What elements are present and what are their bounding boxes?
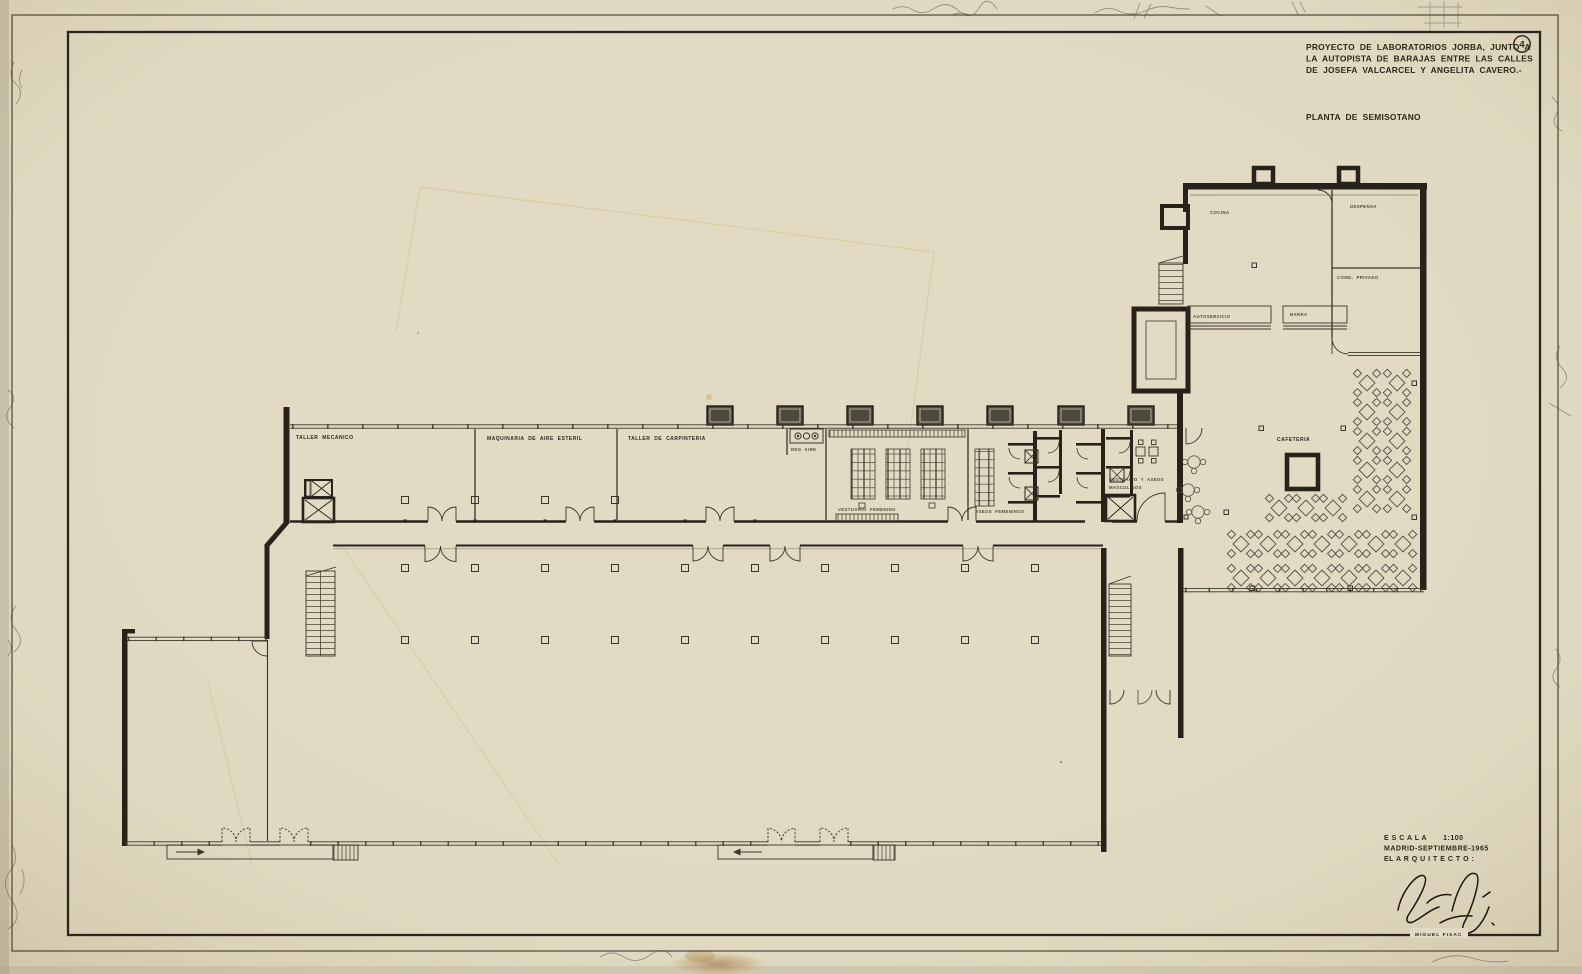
wall-spine-upper [1101, 429, 1105, 522]
room-label-maquinaria: MAQUINARIA DE AIRE ESTERIL [487, 436, 582, 442]
cafeteria-right-wall [1420, 183, 1427, 590]
date-line: MADRID-SEPTIEMBRE-1965 [1384, 846, 1489, 853]
stair-right [1109, 576, 1131, 656]
room-label-vestuario-masc-1: VESTUARIO Y ASEOS [1109, 477, 1164, 482]
room-label-cafeteria: CAFETERIA [1277, 437, 1310, 443]
room-label-aseos-fem: ASEOS FEMENINOS [975, 509, 1024, 514]
room-label-autoservicio: AUTOSERVICIO [1193, 314, 1231, 319]
plan-title: PLANTA DE SEMISOTANO [1306, 112, 1421, 122]
architect-label: EL A R Q U I T E C T O : [1384, 856, 1474, 863]
project-title-line1: PROYECTO DE LABORATORIOS JORBA, JUNTO A [1306, 42, 1531, 52]
paper-texture [0, 0, 1582, 974]
kitchen-north-wall [1183, 183, 1427, 190]
cafeteria-left-wall [1178, 548, 1184, 738]
stain [685, 950, 715, 962]
room-label-vestuario-masc-2: MASCULINOS [1109, 485, 1142, 490]
project-title-line3: DE JOSEFA VALCARCEL Y ANGELITA CAVERO.- [1306, 65, 1522, 75]
room-label-barra: BARRA [1290, 312, 1308, 317]
stair-left [306, 567, 336, 656]
project-title-line2: LA AUTOPISTA DE BARAJAS ENTRE LAS CALLES [1306, 54, 1533, 64]
drawing-sheet: PROYECTO DE LABORATORIOS JORBA, JUNTO A … [0, 0, 1582, 974]
room-label-comedor-privado: COMD. PRIVADO [1337, 275, 1379, 280]
stain [670, 953, 766, 974]
architect-name: MIGUEL FISAC [1415, 932, 1463, 938]
hall-left-upper-wall [265, 544, 270, 639]
kitchen-stair [1159, 256, 1183, 304]
room-label-taller-mecanico: TALLER MECANICO [296, 435, 353, 441]
hall-left-wall [122, 629, 128, 846]
scale-label: E S C A L A [1384, 835, 1427, 842]
room-label-despensa: DESPENSA [1350, 204, 1377, 209]
floor-plan-svg: PROYECTO DE LABORATORIOS JORBA, JUNTO A … [0, 0, 1582, 974]
room-label-reg-aire: REG AIRE [791, 447, 816, 452]
scale-value: 1:100 [1443, 835, 1463, 842]
wall-spine-right [1101, 548, 1107, 852]
wing-right-wall [1177, 392, 1183, 523]
room-label-cocina: COCINA [1210, 210, 1229, 215]
room-label-carpinteria: TALLER DE CARPINTERIA [628, 436, 706, 442]
wing-left-wall [284, 407, 290, 523]
room-label-vestuario-fem: VESTUARIO FEMENINO [838, 507, 896, 512]
page-number-value: 4 [1519, 40, 1525, 51]
scale-line: E S C A L A1:100 [1384, 835, 1464, 842]
